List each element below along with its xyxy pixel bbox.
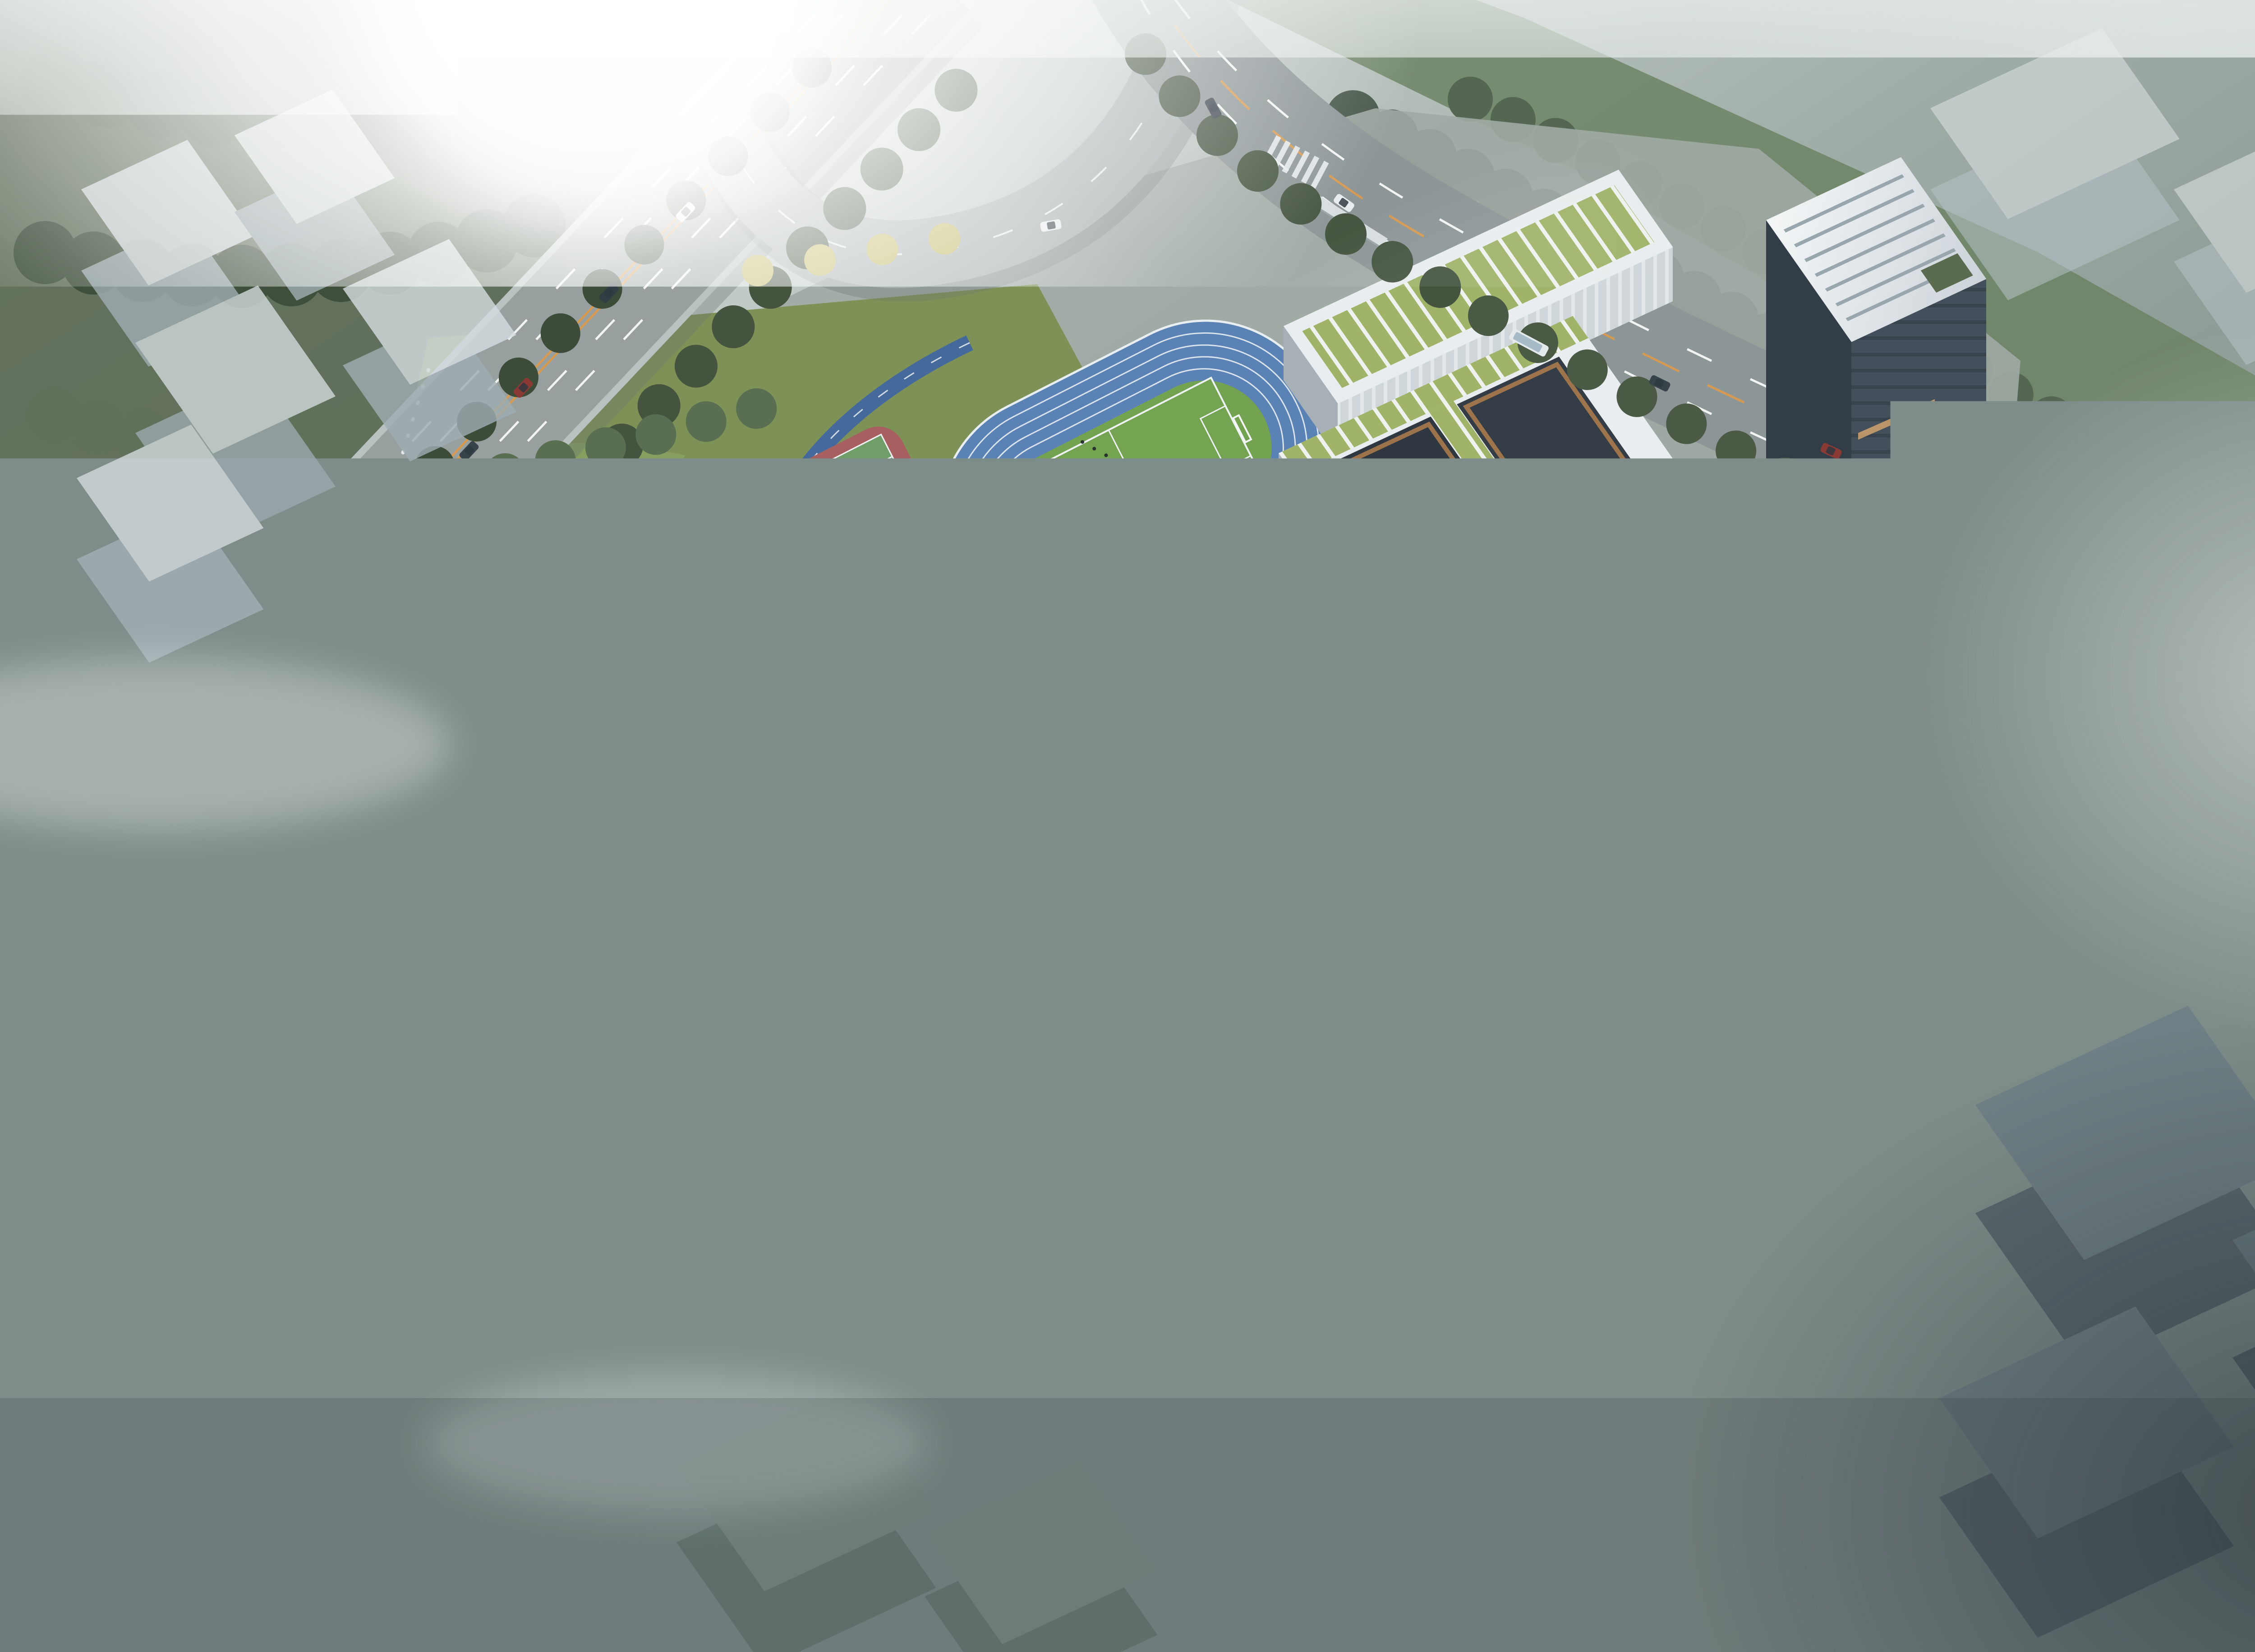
- aerial-rendering-stage: 實 温州市实验中学: [0, 0, 2255, 1652]
- fountain-pond: [1551, 1077, 1712, 1170]
- scene-svg: 實 温州市实验中学: [0, 0, 2255, 1652]
- playground: [944, 1263, 1039, 1322]
